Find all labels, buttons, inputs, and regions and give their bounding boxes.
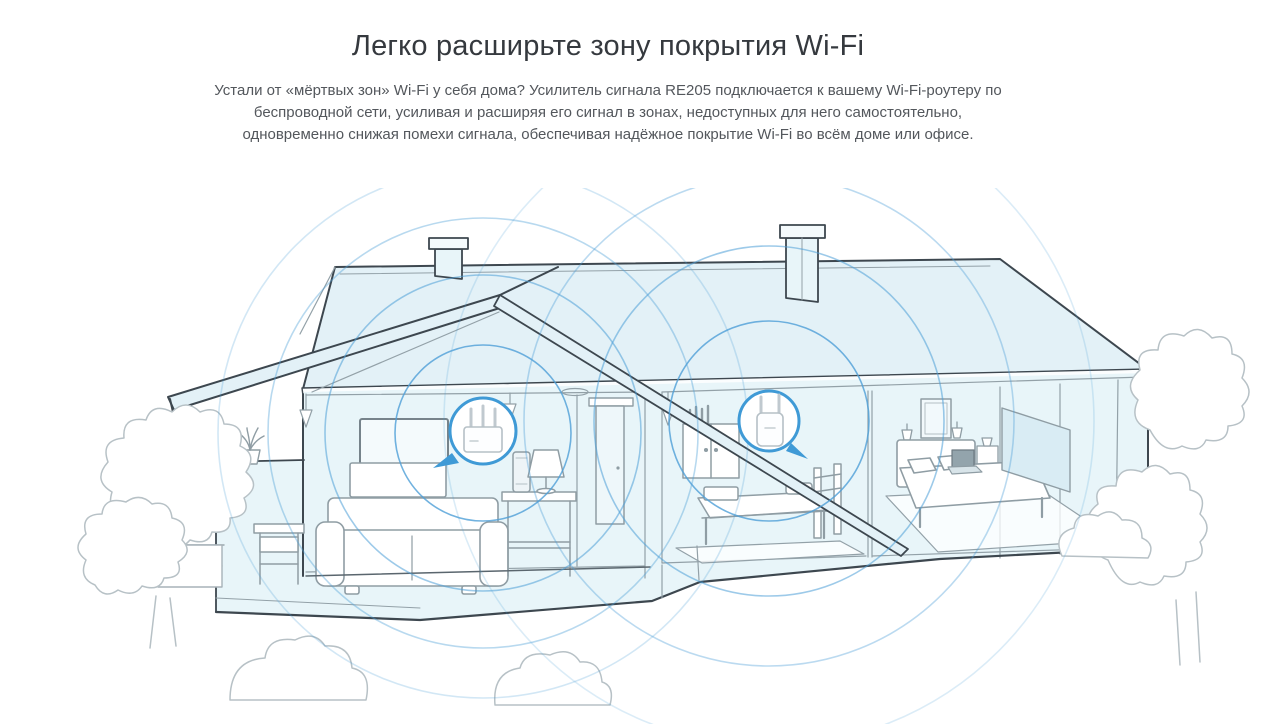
product-description: Устали от «мёртвых зон» Wi-Fi у себя дом… xyxy=(0,80,1216,146)
description-line: Устали от «мёртвых зон» Wi-Fi у себя дом… xyxy=(0,80,1216,102)
description-line: беспроводной сети, усиливая и расширяя е… xyxy=(0,102,1216,124)
roof xyxy=(300,225,1149,396)
chimney-right xyxy=(780,225,825,302)
tv xyxy=(360,419,448,464)
page: { "header": { "title": "Легко расширьте … xyxy=(0,0,1280,724)
hero-section: Легко расширьте зону покрытия Wi-Fi Уста… xyxy=(0,0,1216,146)
bush xyxy=(230,636,611,705)
router-icon xyxy=(464,406,502,452)
page-title: Легко расширьте зону покрытия Wi-Fi xyxy=(0,30,1216,63)
description-line: одновременно снижая помехи сигнала, обес… xyxy=(0,124,1216,146)
picture-frame xyxy=(921,399,951,438)
chimney-left xyxy=(429,238,468,279)
